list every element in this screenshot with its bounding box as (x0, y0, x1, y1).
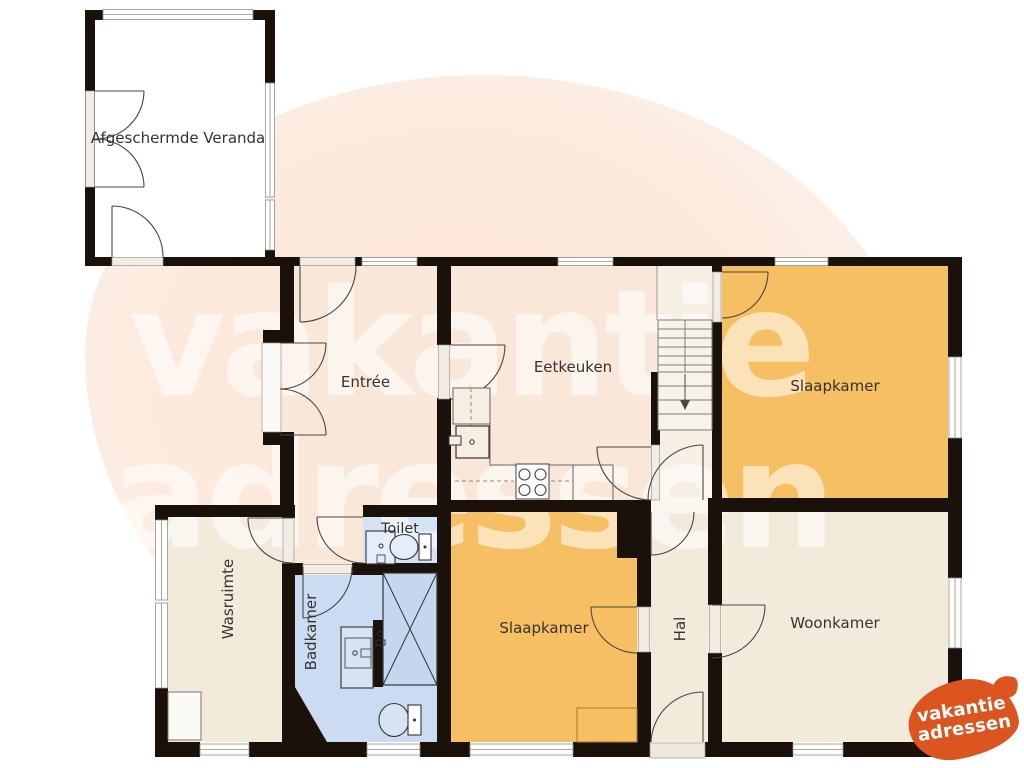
laundry-unit (168, 692, 201, 740)
room-label-slaapkamer-boven: Slaapkamer (722, 377, 948, 395)
window (367, 744, 420, 755)
toilet-icon (390, 534, 431, 560)
window (266, 200, 275, 250)
room-label-hal: Hal (671, 599, 689, 659)
floorplan-canvas: vakantie adressen (0, 0, 1024, 768)
kitchen-counter (490, 388, 613, 500)
door-arc (597, 447, 651, 500)
window (793, 744, 843, 755)
closet-outline (577, 708, 637, 742)
window (470, 744, 573, 755)
room-label-entree: Entrée (294, 373, 437, 391)
window (362, 258, 417, 266)
door-arc (280, 389, 326, 435)
door-arc (651, 692, 703, 742)
window (156, 520, 168, 600)
vanity-sink-icon (341, 627, 373, 688)
window (558, 258, 613, 266)
room-label-slaapkamer-beneden: Slaapkamer (451, 619, 637, 637)
window (949, 357, 961, 438)
door-arc (651, 512, 694, 555)
bathroom-fixtures (341, 573, 437, 737)
room-label-veranda: Afgeschermde Veranda (88, 129, 268, 147)
toilet-icon (379, 704, 421, 737)
kitchen-fixtures (449, 388, 613, 500)
door-arc (112, 206, 163, 257)
sink-icon (449, 426, 489, 458)
room-label-woonkamer: Woonkamer (722, 614, 948, 632)
window (775, 258, 828, 266)
door-arc (317, 517, 363, 563)
door-arc (300, 266, 356, 322)
room-label-wasruimte: Wasruimte (219, 529, 237, 669)
window (103, 10, 253, 20)
window (949, 578, 961, 648)
room-label-toilet: Toilet (363, 521, 437, 537)
shower-icon (376, 573, 437, 685)
door-arc (722, 272, 768, 318)
window (156, 603, 168, 688)
room-label-eetkeuken: Eetkeuken (473, 358, 673, 376)
staircase (657, 266, 712, 430)
window (200, 744, 249, 755)
room-label-badkamer: Badkamer (302, 562, 320, 702)
stove-icon (516, 464, 549, 499)
